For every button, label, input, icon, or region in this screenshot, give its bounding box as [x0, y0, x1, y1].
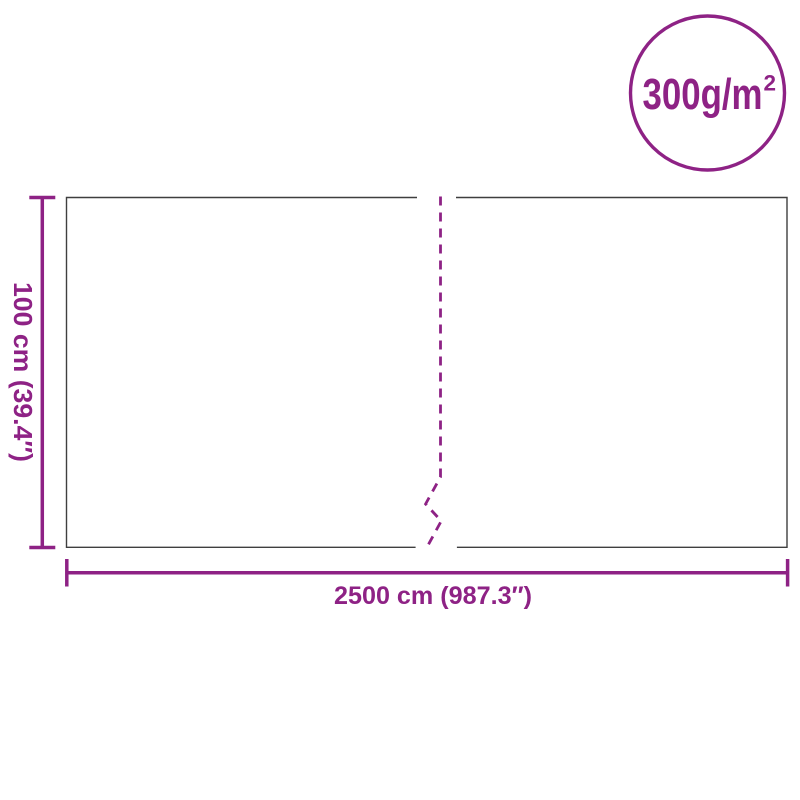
svg-text:300g/m: 300g/m — [643, 71, 763, 119]
svg-text:2: 2 — [764, 70, 777, 95]
svg-text:100 cm (39.4″): 100 cm (39.4″) — [8, 282, 38, 462]
svg-text:2500 cm (987.3″): 2500 cm (987.3″) — [334, 582, 532, 610]
